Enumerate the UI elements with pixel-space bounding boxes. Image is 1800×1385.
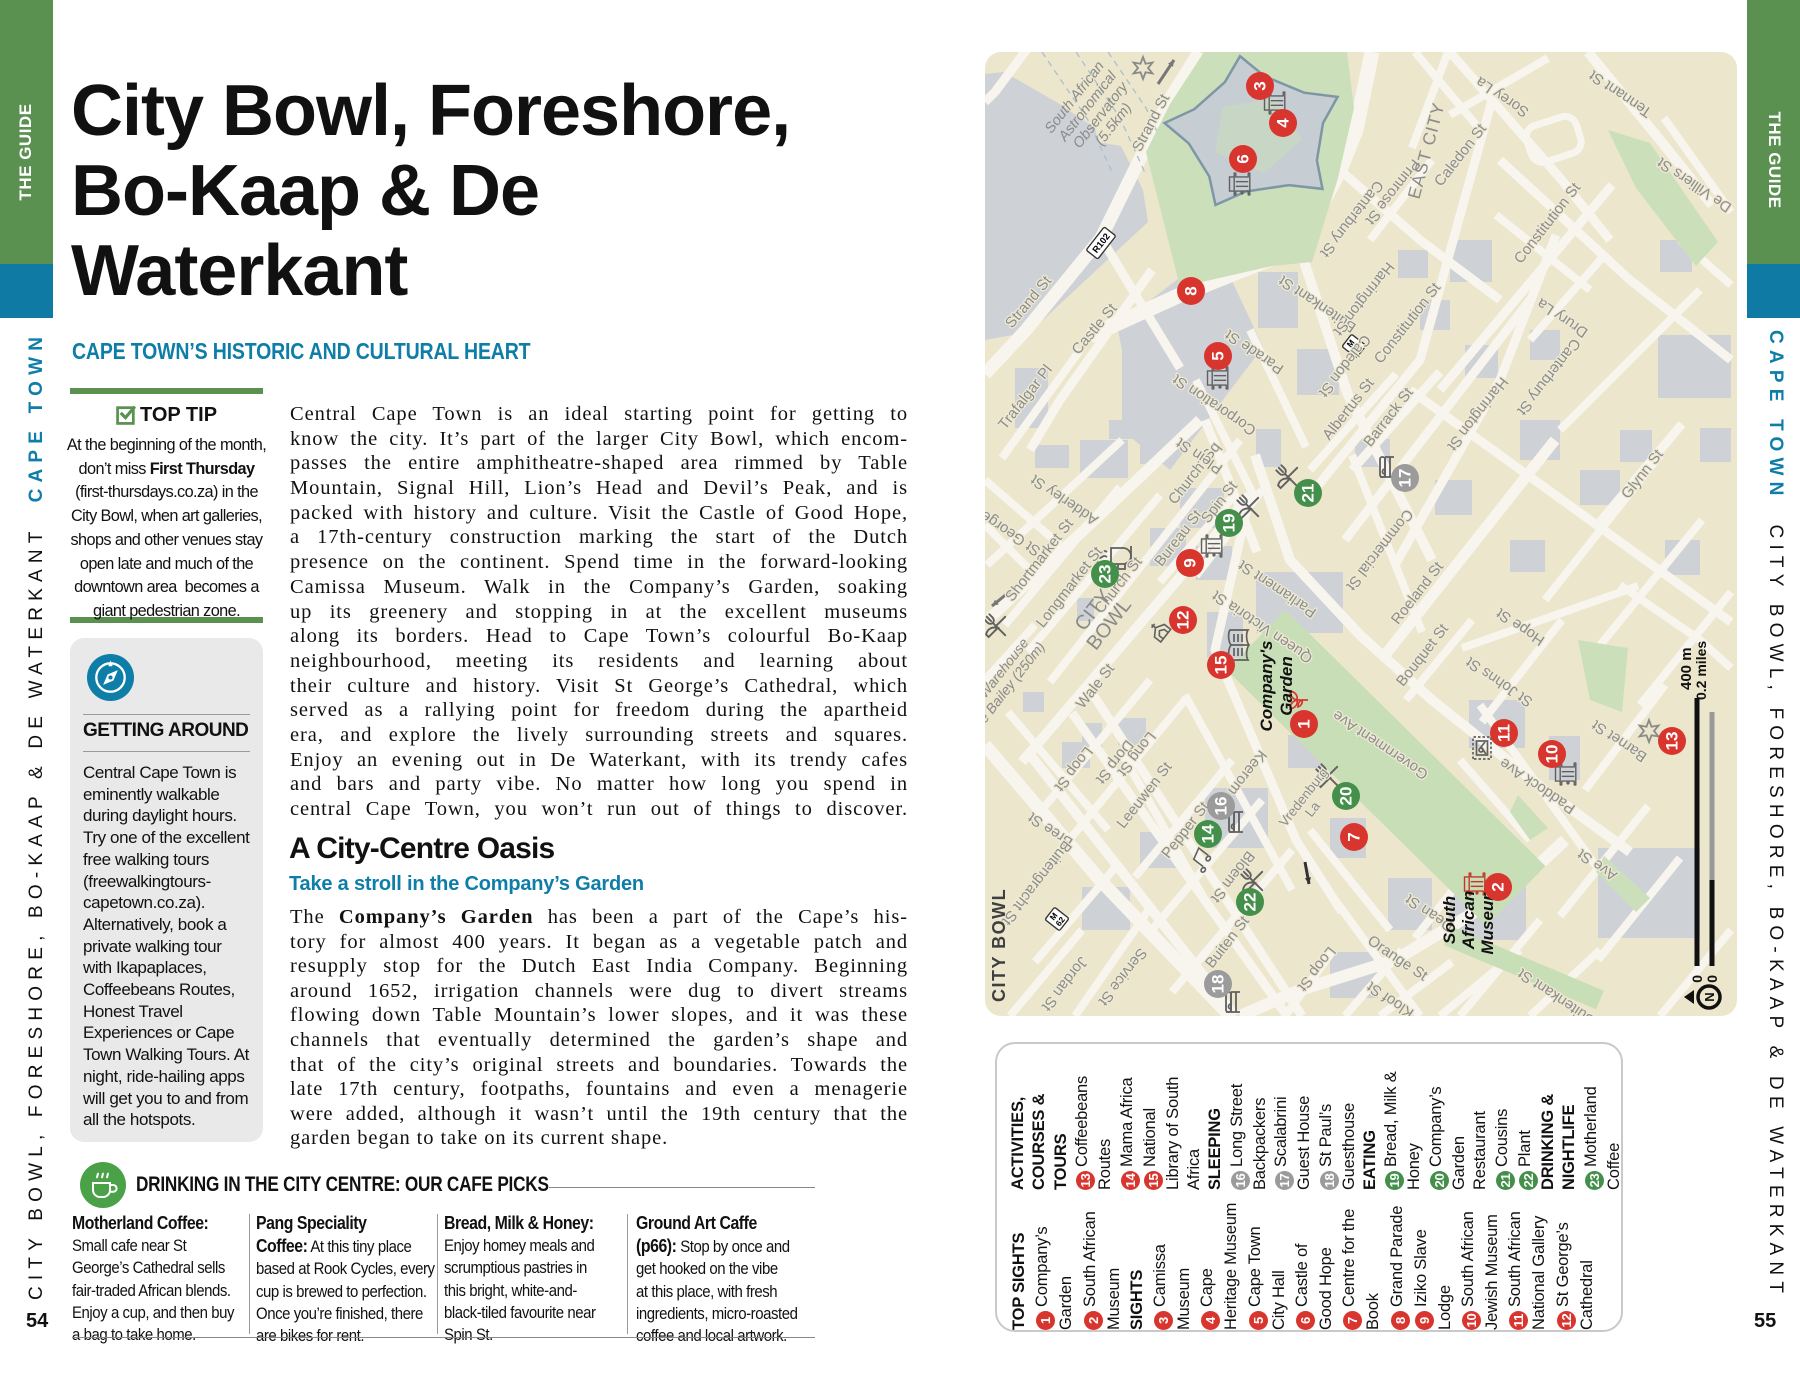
svg-text:0.2 miles: 0.2 miles [1693, 641, 1709, 700]
svg-text:4: 4 [1274, 118, 1293, 128]
svg-text:5: 5 [1209, 351, 1228, 360]
svg-text:20: 20 [1337, 787, 1356, 806]
svg-text:12: 12 [1174, 611, 1193, 630]
svg-text:11: 11 [1495, 724, 1514, 742]
svg-text:2: 2 [1489, 882, 1508, 891]
svg-text:CITY BOWL: CITY BOWL [989, 888, 1009, 1002]
svg-text:23: 23 [1096, 565, 1115, 584]
svg-text:15: 15 [1212, 656, 1231, 675]
svg-text:Garden: Garden [1277, 656, 1296, 716]
svg-text:13: 13 [1663, 732, 1682, 751]
svg-text:0: 0 [1704, 975, 1720, 983]
svg-text:7: 7 [1345, 832, 1364, 841]
svg-text:0: 0 [1689, 975, 1705, 983]
svg-text:N: N [1702, 992, 1717, 1001]
svg-text:19: 19 [1220, 514, 1239, 533]
svg-text:10: 10 [1543, 745, 1562, 764]
svg-text:1: 1 [1295, 719, 1314, 728]
svg-text:17: 17 [1396, 469, 1415, 488]
svg-text:21: 21 [1299, 484, 1318, 503]
svg-text:8: 8 [1182, 286, 1201, 295]
svg-text:African: African [1459, 891, 1478, 951]
svg-text:22: 22 [1241, 893, 1260, 912]
svg-text:6: 6 [1234, 154, 1253, 163]
svg-text:18: 18 [1209, 975, 1228, 994]
svg-text:9: 9 [1181, 558, 1200, 567]
svg-text:South: South [1440, 896, 1459, 944]
svg-text:Company's: Company's [1257, 641, 1276, 732]
svg-text:14: 14 [1199, 824, 1218, 843]
svg-text:3: 3 [1251, 81, 1270, 90]
svg-text:16: 16 [1212, 797, 1231, 816]
